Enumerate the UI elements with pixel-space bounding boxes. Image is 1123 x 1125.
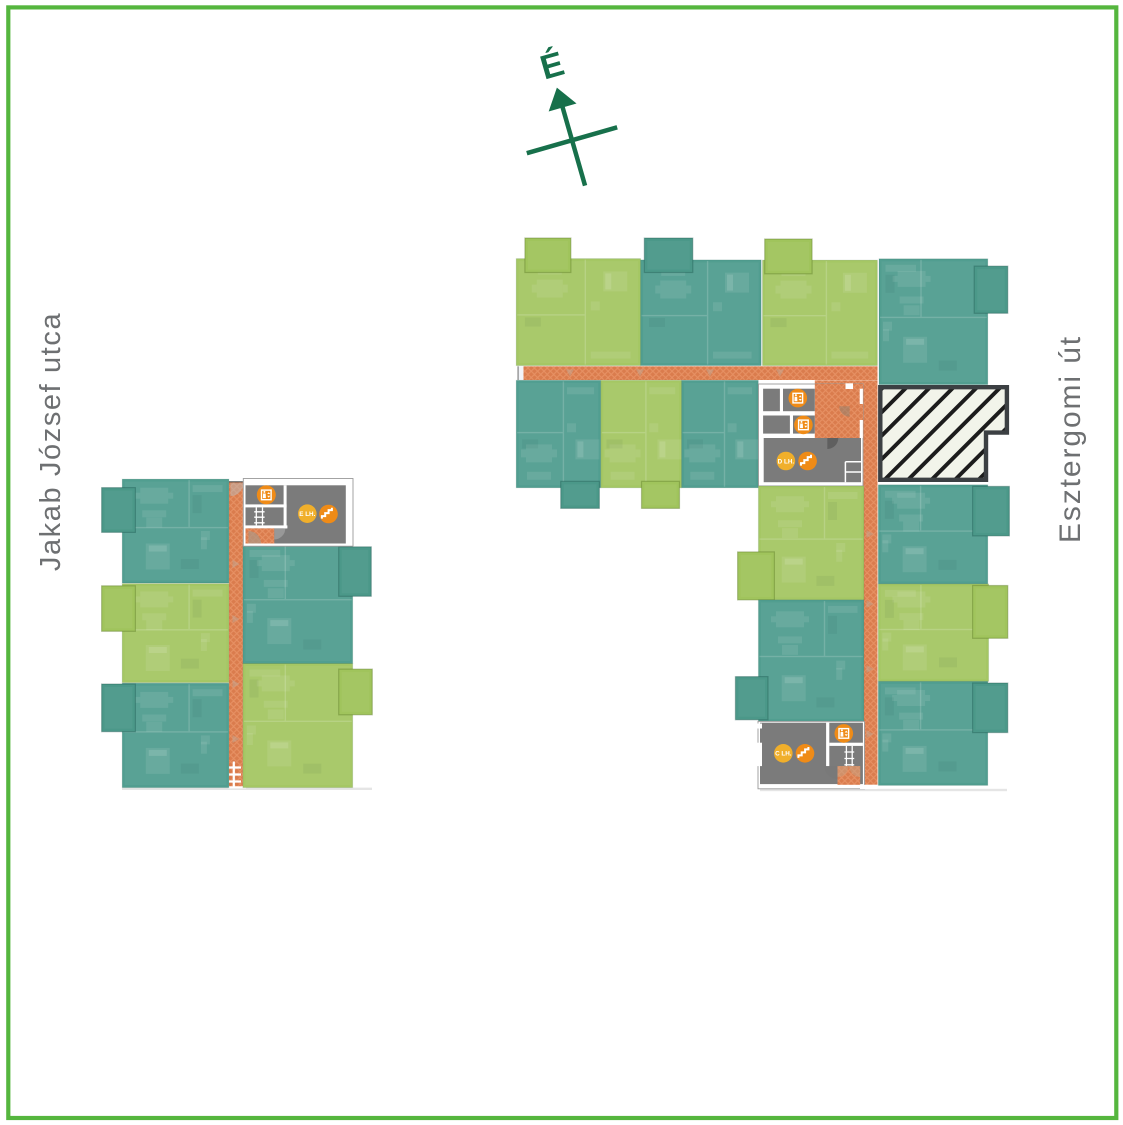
svg-text:Esztergomi út: Esztergomi út [1054, 335, 1087, 543]
svg-text:E LH.: E LH. [299, 511, 315, 518]
svg-text:C LH.: C LH. [775, 751, 792, 758]
svg-text:D LH.: D LH. [778, 458, 795, 465]
svg-text:Jakab József utca: Jakab József utca [35, 312, 67, 571]
